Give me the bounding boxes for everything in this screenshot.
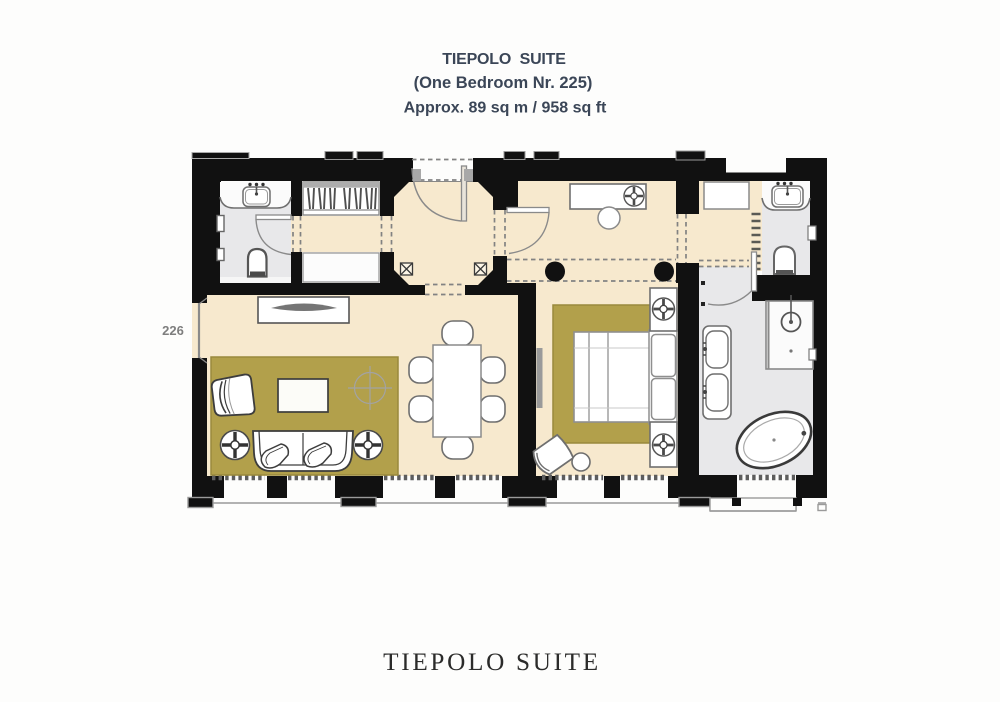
svg-text:(One Bedroom Nr. 225): (One Bedroom Nr. 225) (414, 74, 593, 92)
svg-text:226: 226 (162, 323, 184, 338)
svg-text:TIEPOLO SUITE: TIEPOLO SUITE (442, 51, 566, 68)
svg-text:Approx. 89 sq m / 958 sq ft: Approx. 89 sq m / 958 sq ft (404, 100, 607, 117)
svg-text:TIEPOLO SUITE: TIEPOLO SUITE (383, 649, 601, 676)
